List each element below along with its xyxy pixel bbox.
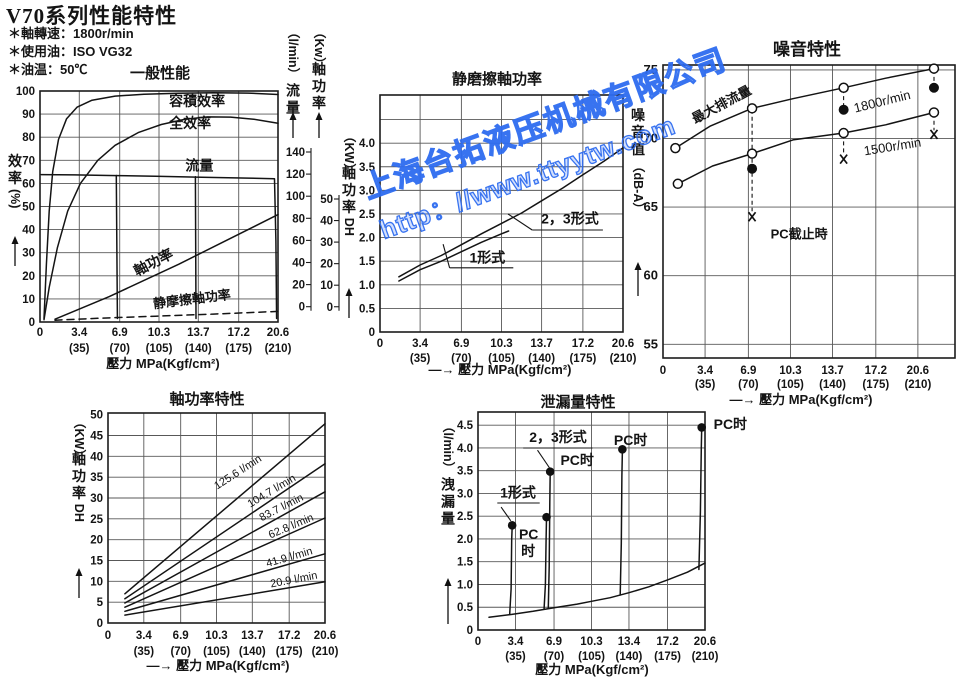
- chart-leakage-characteristics: 03.4(35)6.9(70)10.3(105)13.4(140)17.2(17…: [441, 393, 747, 677]
- y-axis-label-part: 軸: [72, 451, 86, 467]
- x-tick-label: 20.6: [907, 365, 929, 377]
- series-case-drain-base: [489, 563, 705, 617]
- x-tick-label: 13.7: [530, 338, 552, 350]
- chart-title: 静磨擦軸功率: [452, 70, 542, 88]
- right-scale-tick-label: 140: [286, 147, 305, 159]
- chart-title: 噪音特性: [773, 39, 841, 59]
- x-tick-label: 3.4: [697, 365, 714, 377]
- right-scale-tick-label: 120: [286, 169, 305, 181]
- y-tick-label: 45: [90, 431, 103, 443]
- series-pc-spike-5: [699, 428, 702, 569]
- y-tick-label: 3.5: [457, 466, 474, 478]
- right-scale-tick-label: 40: [320, 216, 333, 228]
- y-tick-label: 60: [644, 268, 658, 283]
- curve-label: 最大排流量: [689, 82, 753, 126]
- y-axis-label-part: 軸: [312, 61, 326, 77]
- curve-label: 125.6 l/min: [212, 453, 264, 492]
- x-tick-label-paren: (105): [203, 646, 230, 658]
- axis-arrowhead-icon: [12, 236, 19, 244]
- y-tick-label: 10: [90, 576, 103, 588]
- x-tick-label-paren: (140): [239, 646, 266, 658]
- x-tick-label-paren: (70): [738, 379, 759, 391]
- x-tick-label-paren: (175): [225, 343, 252, 355]
- chart-title: 泄漏量特性: [540, 393, 615, 411]
- y-tick-label: 90: [22, 109, 35, 121]
- y-tick-label: 4.0: [457, 443, 473, 455]
- x-tick-label-paren: (140): [819, 379, 846, 391]
- y-tick-label: 20: [22, 271, 35, 283]
- y-axis-label-part: (%): [8, 189, 22, 208]
- y-axis-label-part: 軸: [342, 165, 356, 181]
- axis-arrowhead-icon: [76, 568, 83, 576]
- label-leader-line: [443, 244, 450, 268]
- x-tick-label: 13.7: [821, 365, 843, 377]
- x-tick-label-paren: (35): [410, 353, 431, 365]
- y-tick-label: 3.0: [457, 488, 473, 500]
- x-tick-label-paren: (175): [862, 379, 889, 391]
- right-scale-tick-label: 80: [292, 213, 305, 225]
- y-tick-label: 60: [22, 178, 35, 190]
- y-tick-label: 4.0: [359, 138, 375, 150]
- y-axis-label-part: 功: [72, 468, 86, 484]
- curve-label: PC: [519, 526, 538, 542]
- y-tick-label: 20: [90, 535, 103, 547]
- x-tick-label: 6.9: [173, 630, 189, 642]
- label-leader-line: [508, 214, 532, 230]
- x-tick-label: 0: [660, 365, 666, 377]
- y-tick-label: 4.5: [457, 420, 474, 432]
- x-axis-label: —→ 壓力 MPa(Kgf/cm²): [729, 392, 872, 407]
- y-axis-label-part: 量: [441, 510, 455, 526]
- y-tick-label: 2.5: [359, 209, 376, 221]
- x-tick-label-paren: (175): [569, 353, 596, 365]
- y-tick-label: 55: [644, 336, 658, 351]
- y-axis-label-part: 功: [312, 78, 326, 94]
- x-tick-label-paren: (210): [904, 379, 931, 391]
- x-tick-label: 17.2: [228, 327, 250, 339]
- open-circle-marker: [839, 129, 848, 138]
- x-tick-label-paren: (210): [312, 646, 339, 658]
- chart-general-performance: 03.4(35)6.9(70)10.3(105)13.7(140)17.2(17…: [8, 26, 339, 371]
- y-tick-label: 80: [22, 132, 35, 144]
- curve-label: PC时: [614, 432, 647, 448]
- y-tick-label: 50: [22, 202, 35, 214]
- y-axis-label-part: （l/min）: [441, 420, 456, 474]
- charts-canvas: 03.4(35)6.9(70)10.3(105)13.7(140)17.2(17…: [0, 0, 980, 678]
- x-tick-label: 0: [105, 630, 111, 642]
- x-tick-label: 17.2: [278, 630, 300, 642]
- x-tick-label-paren: (140): [185, 343, 212, 355]
- dot-marker: [543, 513, 551, 521]
- curve-label: PC截止時: [771, 227, 828, 242]
- x-tick-label-paren: (210): [692, 651, 719, 663]
- x-tick-label: 17.2: [865, 365, 887, 377]
- series-flow-cutoff-70: [116, 176, 117, 319]
- x-tick-label: 10.3: [779, 365, 801, 377]
- curve-label: 时: [521, 543, 535, 559]
- right-scale-tick-label: 0: [327, 302, 333, 314]
- x-tick-label-paren: (210): [610, 353, 637, 365]
- x-tick-label: 10.3: [490, 338, 512, 350]
- curve-label: PC时: [560, 452, 593, 468]
- x-tick-label: 10.3: [205, 630, 227, 642]
- curve-label: 流量: [185, 158, 213, 174]
- x-tick-label: 6.9: [453, 338, 469, 350]
- y-tick-label: 1.5: [359, 256, 376, 268]
- x-tick-label: 0: [377, 338, 383, 350]
- x-tick-label-paren: (35): [134, 646, 155, 658]
- label-leader-line: [538, 450, 550, 468]
- y-tick-label: 15: [90, 556, 103, 568]
- y-axis-label-part: 功: [342, 182, 356, 198]
- open-circle-marker: [929, 64, 938, 73]
- y-tick-label: 35: [90, 472, 103, 484]
- open-circle-marker: [673, 179, 682, 188]
- x-tick-label: 13.7: [241, 630, 263, 642]
- y-axis-label-part: （l/min）: [286, 26, 301, 80]
- right-scale-tick-label: 50: [320, 194, 333, 206]
- x-axis-label: 壓力 MPa(Kgf/cm²): [106, 356, 219, 371]
- filled-circle-marker: [748, 164, 757, 173]
- x-tick-label: 13.7: [187, 327, 209, 339]
- curve-label: PC时: [714, 416, 747, 432]
- x-axis-label: 壓力 MPa(Kgf/cm²): [535, 662, 648, 677]
- curve-label: 1形式: [469, 250, 505, 266]
- x-tick-label: 20.6: [612, 338, 634, 350]
- x-tick-label: 10.3: [148, 327, 170, 339]
- x-tick-label-paren: (210): [265, 343, 292, 355]
- open-circle-marker: [748, 104, 757, 113]
- series-static-friction-shaft-power: [55, 311, 278, 320]
- y-tick-label: 100: [16, 86, 35, 98]
- open-circle-marker: [839, 83, 848, 92]
- x-tick-label: 3.4: [136, 630, 153, 642]
- y-axis-label-part: 率: [312, 95, 326, 111]
- x-axis-label: —→ 壓力 MPa(Kgf/cm²): [428, 362, 571, 377]
- y-tick-label: 0: [467, 625, 473, 637]
- right-scale-tick-label: 40: [292, 258, 305, 270]
- x-tick-label: 10.3: [580, 636, 602, 648]
- x-tick-label: 0: [475, 636, 481, 648]
- y-tick-label: 40: [22, 225, 35, 237]
- y-axis-label-part: 漏: [441, 493, 455, 509]
- x-tick-label-paren: (70): [170, 646, 191, 658]
- y-tick-label: 1.0: [359, 280, 375, 292]
- right-scale-tick-label: 100: [286, 191, 305, 203]
- right-scale-tick-label: 20: [292, 280, 305, 292]
- right-scale-tick-label: 0: [299, 302, 305, 314]
- y-tick-label: 2.0: [359, 233, 375, 245]
- x-tick-label-paren: (105): [146, 343, 173, 355]
- x-tick-label-paren: (35): [695, 379, 716, 391]
- x-tick-label-paren: (175): [654, 651, 681, 663]
- x-tick-label: 20.6: [694, 636, 716, 648]
- y-tick-label: 5: [97, 597, 104, 609]
- x-tick-label: 13.4: [618, 636, 641, 648]
- x-tick-label: 20.6: [267, 327, 289, 339]
- x-tick-label: 3.4: [412, 338, 429, 350]
- dot-marker: [508, 522, 516, 530]
- right-scale-tick-label: 60: [292, 235, 305, 247]
- open-circle-marker: [748, 149, 757, 158]
- y-axis-label-part: 率: [8, 170, 22, 186]
- y-axis-label-part: 效: [8, 153, 23, 169]
- axis-arrowhead-icon: [635, 262, 642, 270]
- dot-marker: [546, 468, 554, 476]
- curve-label: 1800r/min: [852, 87, 912, 116]
- y-tick-label: 0.5: [359, 303, 376, 315]
- y-tick-label: 25: [90, 514, 103, 526]
- y-tick-label: 2.5: [457, 511, 474, 523]
- curve-label: 2，3形式: [529, 429, 587, 445]
- right-scale-tick-label: 30: [320, 237, 333, 249]
- y-tick-label: 2.0: [457, 534, 473, 546]
- x-tick-label-paren: (175): [276, 646, 303, 658]
- axis-arrowhead-icon: [346, 288, 353, 296]
- y-tick-label: 0: [29, 317, 35, 329]
- x-tick-label: 3.4: [71, 327, 88, 339]
- curve-label: 2，3形式: [541, 210, 599, 226]
- y-tick-label: 0.5: [457, 602, 474, 614]
- right-scale-tick-label: 20: [320, 259, 333, 271]
- filled-circle-marker: [929, 83, 938, 92]
- x-tick-label-paren: (70): [109, 343, 130, 355]
- y-tick-label: 0: [97, 618, 103, 630]
- curve-label: 全效率: [168, 115, 211, 131]
- x-tick-label: 20.6: [314, 630, 336, 642]
- series-pc-spike-2: [544, 518, 546, 609]
- right-scale-tick-label: 10: [320, 280, 333, 292]
- x-tick-label: 6.9: [112, 327, 128, 339]
- x-tick-label: 17.2: [572, 338, 594, 350]
- x-tick-label: 17.2: [656, 636, 678, 648]
- y-axis-label-part: 流: [286, 82, 300, 98]
- y-tick-label: 10: [22, 294, 35, 306]
- chart-title: 軸功率特性: [169, 390, 244, 408]
- y-axis-label-part: 洩: [441, 476, 455, 492]
- series-pc-spike-4: [620, 450, 622, 595]
- axis-arrowhead-icon: [445, 578, 452, 586]
- x-tick-label-paren: (105): [777, 379, 804, 391]
- x-tick-label: 0: [37, 327, 43, 339]
- open-circle-marker: [671, 144, 680, 153]
- y-tick-label: 70: [22, 155, 35, 167]
- x-axis-label: —→ 壓力 MPa(Kgf/cm²): [146, 658, 289, 673]
- curve-label: 容積效率: [168, 93, 225, 109]
- chart-title: 一般性能: [130, 64, 190, 82]
- x-tick-label-paren: (35): [69, 343, 90, 355]
- series-pc-spike-3: [548, 473, 550, 609]
- axis-arrowhead-icon: [316, 112, 323, 120]
- curve-label: 軸功率: [131, 245, 176, 278]
- y-tick-label: 50: [90, 410, 103, 422]
- x-tick-label-paren: (35): [505, 651, 526, 663]
- y-axis-label-part: DH: [342, 218, 356, 236]
- y-tick-label: 1.0: [457, 579, 473, 591]
- x-tick-label: 3.4: [507, 636, 524, 648]
- y-axis-label-part: 率: [342, 199, 356, 215]
- chart-shaft-power-characteristics: 03.4(35)6.9(70)10.3(105)13.7(140)17.2(17…: [72, 390, 339, 673]
- y-tick-label: 30: [22, 248, 35, 260]
- label-leader-line: [501, 507, 511, 521]
- curve-label: 静摩擦軸功率: [152, 287, 231, 311]
- y-axis-label-part: 率: [72, 485, 86, 501]
- y-tick-label: 0: [369, 327, 375, 339]
- filled-circle-marker: [839, 105, 848, 114]
- x-tick-label: 6.9: [546, 636, 562, 648]
- dot-marker: [698, 424, 706, 432]
- y-axis-label-part: DH: [72, 504, 86, 522]
- y-tick-label: 1.5: [457, 557, 474, 569]
- x-tick-label: 6.9: [740, 365, 756, 377]
- y-tick-label: 30: [90, 493, 103, 505]
- open-circle-marker: [929, 108, 938, 117]
- y-axis-label-part: （dB-A）: [631, 160, 646, 215]
- y-tick-label: 40: [90, 451, 103, 463]
- curve-label: 1形式: [500, 485, 536, 501]
